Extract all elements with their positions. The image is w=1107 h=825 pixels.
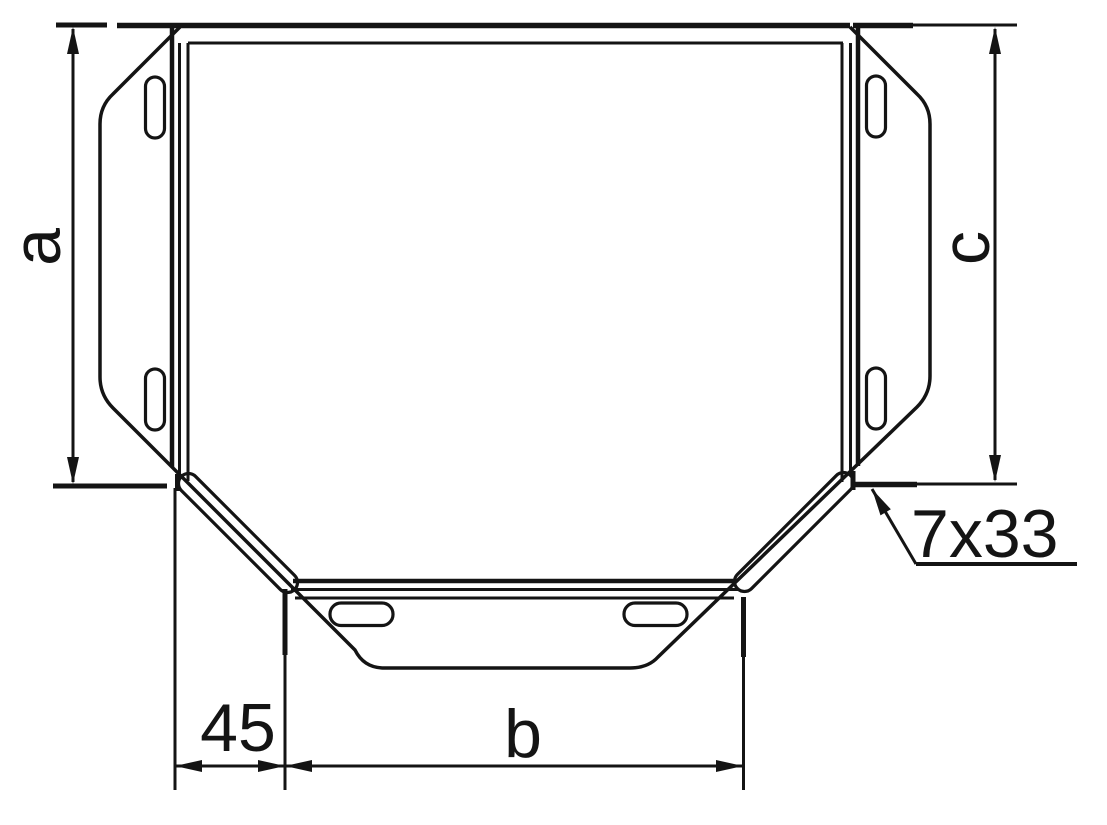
slot-size-label: 7x33: [911, 496, 1058, 572]
oblong-hole-left-bottom: [146, 369, 165, 430]
dim-c-label: c: [928, 231, 1004, 265]
tee-fitting-drawing: a c 45 b: [0, 0, 1107, 825]
dim-45-arrow-left-icon: [175, 760, 202, 772]
tray-tee-body: [100, 26, 930, 669]
dimension-c: c: [853, 25, 1017, 485]
dim-a-label: a: [0, 228, 75, 266]
dimension-a: a: [0, 25, 167, 486]
dim-b-arrow-left-icon: [285, 760, 312, 772]
dim-a-arrow-down-icon: [67, 457, 79, 484]
oblong-hole-branch-right: [624, 603, 687, 626]
dim-c-arrow-down-icon: [989, 455, 1001, 482]
oblong-hole-right-bottom: [867, 368, 886, 429]
bend-strip-right: [730, 468, 857, 595]
oblong-hole-branch-left: [330, 603, 393, 626]
slot-size-callout: 7x33: [867, 486, 1077, 572]
dim-a-arrow-up-icon: [67, 27, 79, 54]
technical-drawing-canvas: a c 45 b: [0, 0, 1107, 825]
body-outline: [100, 27, 930, 668]
oblong-hole-right-top: [867, 76, 886, 137]
dimension-b: b: [285, 589, 744, 790]
dim-b-arrow-right-icon: [716, 760, 743, 772]
dimension-45: 45: [175, 488, 285, 790]
dim-c-arrow-up-icon: [989, 27, 1001, 54]
dim-b-label: b: [504, 696, 542, 772]
oblong-hole-left-top: [146, 77, 165, 138]
dim-45-label: 45: [200, 690, 276, 766]
slot-size-leader-arrow-icon: [867, 486, 891, 515]
